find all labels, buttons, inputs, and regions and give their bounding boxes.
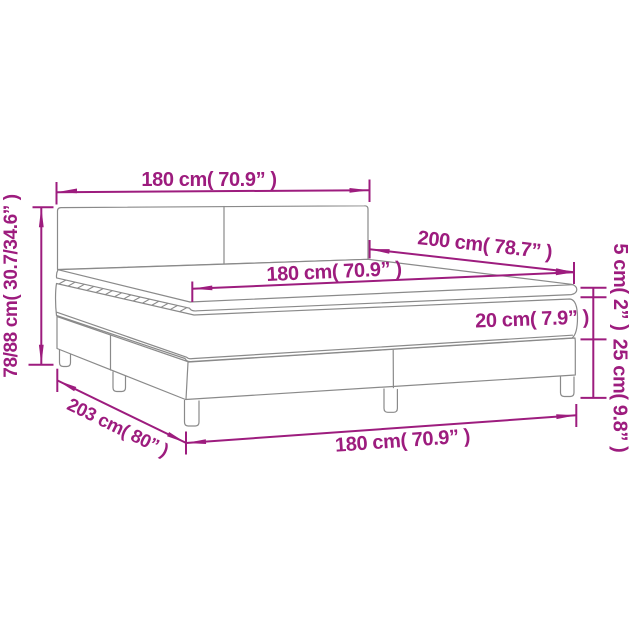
svg-text:25 cm( 9.8” ): 25 cm( 9.8” ) — [609, 339, 631, 453]
svg-text:78/88 cm( 30.7/34.6” ): 78/88 cm( 30.7/34.6” ) — [1, 194, 22, 378]
svg-text:180 cm( 70.9” ): 180 cm( 70.9” ) — [141, 169, 276, 191]
svg-text:20 cm( 7.9” ): 20 cm( 7.9” ) — [475, 307, 589, 333]
svg-text:5 cm( 2” ): 5 cm( 2” ) — [609, 243, 631, 330]
